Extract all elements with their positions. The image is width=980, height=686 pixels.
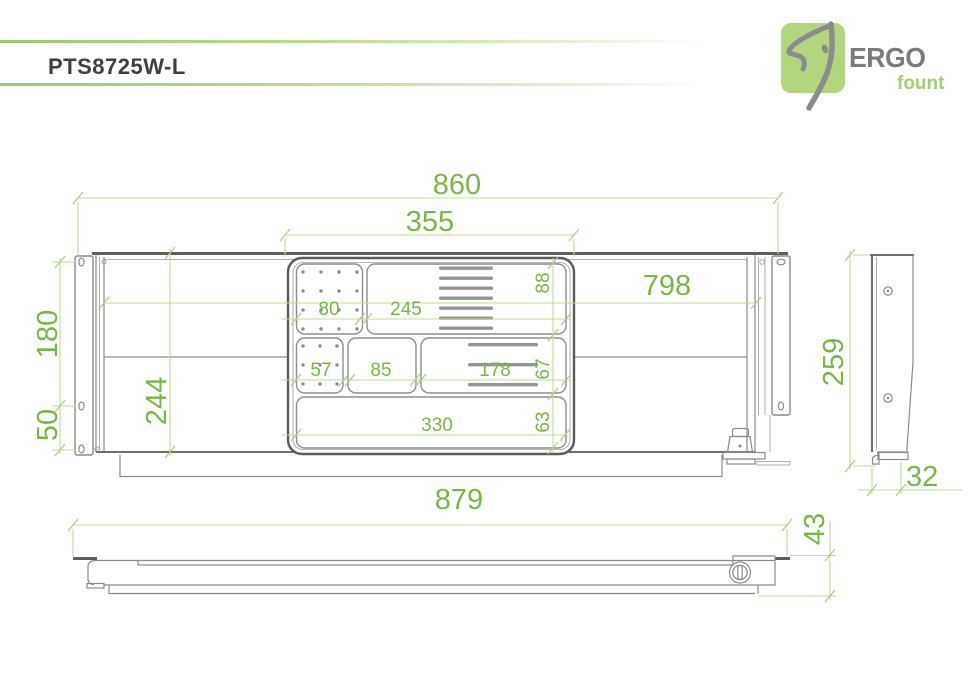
bottom-view	[73, 556, 790, 594]
dim-row63-label: 63	[533, 411, 554, 432]
dim-bottom-height-label: 43	[799, 513, 831, 545]
dim-cell178-label: 178	[479, 360, 511, 381]
technical-drawing: 860 355 798 180 50 244 80 245 57 85 178 …	[0, 0, 980, 686]
dim-bracket-lower-label: 50	[32, 409, 64, 441]
dim-tray-width-label: 355	[406, 206, 454, 238]
bottom-lock	[730, 562, 751, 583]
dim-inner-width-label: 798	[643, 270, 691, 302]
dim-inner-height-label: 244	[141, 377, 173, 425]
dim-cell80-label: 80	[318, 299, 339, 320]
dim-cell245-label: 245	[390, 299, 422, 320]
base-plinth	[120, 455, 722, 477]
right-mounting-bracket	[772, 256, 790, 415]
side-view	[870, 255, 914, 464]
dim-row88-label: 88	[533, 272, 554, 293]
dim-side-depth-label: 32	[906, 461, 938, 493]
side-screw-top	[884, 287, 892, 295]
lock-cylinder	[723, 429, 765, 465]
dim-side-height-label: 259	[818, 338, 850, 386]
side-screw-bottom	[884, 394, 892, 402]
dim-cell330-label: 330	[421, 415, 453, 436]
left-mounting-bracket	[75, 256, 93, 455]
dim-cell85-label: 85	[370, 360, 391, 381]
page: PTS8725W-L ERGO fount	[0, 0, 980, 686]
dim-bottom-length-label: 879	[435, 484, 483, 516]
dim-row67-label: 67	[533, 358, 554, 379]
dim-bracket-span-label: 180	[32, 310, 64, 358]
dim-cell57-label: 57	[310, 360, 331, 381]
dim-overall-width-label: 860	[433, 169, 481, 201]
